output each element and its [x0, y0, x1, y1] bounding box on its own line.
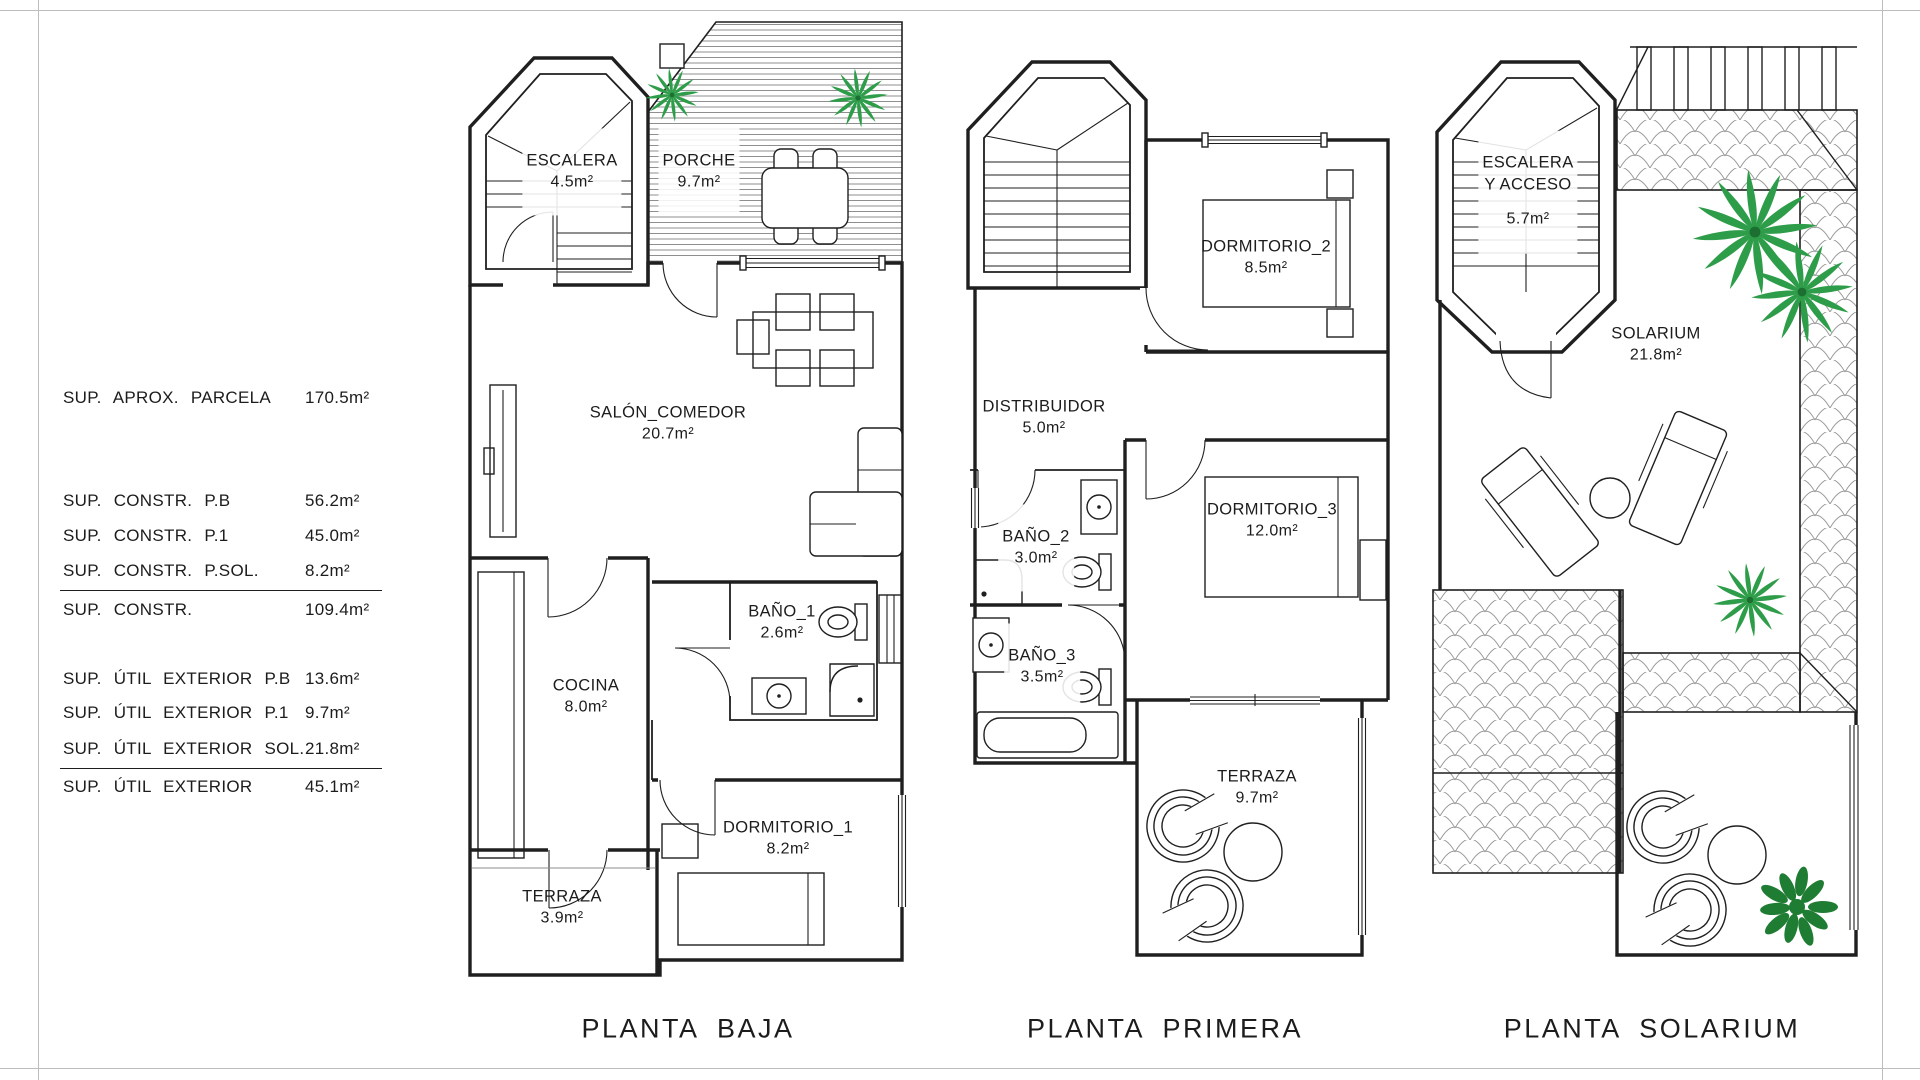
sink	[752, 678, 806, 714]
window-slider-dormitorio3	[1190, 694, 1320, 706]
door-arc	[548, 558, 607, 617]
room-label-escalera: ESCALERA 4.5m²	[522, 128, 621, 215]
room-label-salon-comedor: SALÓN_COMEDOR 20.7m²	[590, 381, 746, 466]
row-label: SUP. CONSTR. P.SOL.	[63, 561, 259, 581]
planter-box	[660, 44, 684, 68]
door-arc	[675, 648, 730, 703]
room-name: DORMITORIO_1	[723, 819, 853, 837]
door-arc	[1500, 341, 1551, 398]
table-rule	[60, 768, 382, 769]
door-arc	[1146, 288, 1208, 350]
door-arc	[660, 780, 715, 835]
room-label-bano1: BAÑO_1 2.6m²	[748, 580, 816, 665]
row-label: SUP. ÚTIL EXTERIOR P.B	[63, 669, 291, 689]
room-name: DISTRIBUIDOR	[982, 398, 1105, 416]
bathtub	[977, 712, 1118, 758]
sofa	[810, 428, 902, 556]
room-label-dormitorio3: DORMITORIO_3 12.0m²	[1207, 478, 1337, 563]
room-label-cocina: COCINA 8.0m²	[553, 654, 620, 739]
pergola	[1615, 47, 1857, 113]
shower	[830, 664, 874, 716]
dresser	[1327, 170, 1353, 198]
salon-dining-set	[737, 294, 873, 386]
round-table	[1224, 823, 1282, 881]
plan-title-planta-primera: PLANTA PRIMERA	[1027, 1014, 1303, 1045]
room-name: BAÑO_2	[1002, 528, 1070, 546]
roof-tiles-left	[1433, 590, 1623, 873]
row-value: 9.7m²	[305, 703, 350, 723]
dresser	[1327, 309, 1353, 337]
round-table	[1708, 826, 1766, 884]
room-label-dormitorio1: DORMITORIO_1 8.2m²	[723, 796, 853, 881]
row-value: 170.5m²	[305, 388, 369, 408]
row-value: 21.8m²	[305, 739, 360, 759]
row-label: SUP. ÚTIL EXTERIOR	[63, 777, 252, 797]
row-label: SUP. APROX. PARCELA	[63, 388, 271, 408]
window-dormitorio2	[1202, 133, 1327, 147]
kitchen-counter	[478, 572, 524, 858]
room-name: ESCALERA	[526, 152, 617, 170]
sun-lounger	[1622, 407, 1735, 548]
room-area: 9.7m²	[663, 172, 736, 193]
row-value: 109.4m²	[305, 600, 369, 620]
table-rule	[60, 590, 382, 591]
room-area: 8.5m²	[1201, 258, 1331, 279]
roof-tiles-top	[1617, 110, 1857, 190]
room-area: 4.5m²	[526, 172, 617, 193]
room-area: 8.0m²	[553, 697, 620, 718]
room-name: BAÑO_1	[748, 603, 816, 621]
duct-shaft	[879, 595, 902, 663]
sink	[1081, 480, 1117, 534]
lower-terrace-solarium	[1615, 712, 1860, 963]
door-arc	[663, 263, 717, 317]
room-name: BAÑO_3	[1008, 647, 1076, 665]
room-label-dormitorio2: DORMITORIO_2 8.5m²	[1201, 215, 1331, 300]
row-label: SUP. CONSTR. P.1	[63, 526, 229, 546]
row-label: SUP. ÚTIL EXTERIOR SOL.	[63, 739, 304, 759]
row-value: 56.2m²	[305, 491, 360, 511]
room-label-solarium: SOLARIUM 21.8m²	[1611, 302, 1700, 387]
row-label: SUP. ÚTIL EXTERIOR P.1	[63, 703, 289, 723]
room-area: 21.8m²	[1611, 345, 1700, 366]
round-table	[1590, 478, 1630, 518]
row-value: 45.0m²	[305, 526, 360, 546]
row-label: SUP. CONSTR. P.B	[63, 491, 230, 511]
row-value: 13.6m²	[305, 669, 360, 689]
drawing-sheet: SUP. APROX. PARCELA 170.5m² SUP. CONSTR.…	[0, 0, 1920, 1080]
room-name: SOLARIUM	[1611, 325, 1700, 343]
solarium-furniture	[1474, 407, 1734, 582]
room-name: SALÓN_COMEDOR	[590, 404, 746, 422]
palm-plant	[1713, 563, 1787, 637]
room-name: PORCHE	[663, 152, 736, 170]
door-arc	[1146, 440, 1205, 499]
room-area: 3.5m²	[1008, 667, 1076, 688]
room-area: 3.9m²	[522, 908, 602, 929]
closet	[1360, 540, 1386, 600]
sun-lounger	[1474, 442, 1606, 583]
room-name: DORMITORIO_3	[1207, 501, 1337, 519]
room-label-terraza-primera: TERRAZA 9.7m²	[1217, 745, 1297, 830]
room-label-porche: PORCHE 9.7m²	[659, 128, 740, 215]
room-name: COCINA	[553, 677, 620, 695]
bush-plant	[1758, 866, 1838, 948]
window-salon-porch	[740, 256, 885, 270]
room-label-distribuidor: DISTRIBUIDOR 5.0m²	[982, 375, 1105, 460]
room-name: DORMITORIO_2	[1201, 238, 1331, 256]
room-area: 12.0m²	[1207, 521, 1337, 542]
room-label-bano3: BAÑO_3 3.5m²	[1004, 623, 1080, 710]
room-name: TERRAZA	[1217, 768, 1297, 786]
toilet	[819, 604, 867, 640]
tv-unit	[484, 385, 516, 537]
room-area: 5.0m²	[982, 418, 1105, 439]
nightstand	[662, 824, 698, 858]
roof-tiles-bottom	[1623, 653, 1800, 712]
roof-tiles-right	[1800, 190, 1857, 712]
room-area: 9.7m²	[1217, 788, 1297, 809]
room-label-bano2: BAÑO_2 3.0m²	[998, 504, 1074, 591]
room-name: ESCALERA Y ACCESO	[1482, 154, 1573, 193]
room-label-escalera-acceso: ESCALERA Y ACCESO 5.7m²	[1478, 131, 1577, 254]
room-label-terraza-baja: TERRAZA 3.9m²	[522, 865, 602, 950]
window-terraza-primera	[1356, 718, 1368, 935]
plan-title-planta-baja: PLANTA BAJA	[581, 1014, 794, 1045]
plan-title-planta-solarium: PLANTA SOLARIUM	[1504, 1014, 1801, 1045]
row-value: 8.2m²	[305, 561, 350, 581]
room-area: 5.7m²	[1482, 210, 1573, 231]
room-name: TERRAZA	[522, 888, 602, 906]
row-label: SUP. CONSTR.	[63, 600, 192, 620]
room-area: 20.7m²	[590, 424, 746, 445]
row-value: 45.1m²	[305, 777, 360, 797]
round-chair	[1615, 776, 1718, 875]
stair-tower-primera	[968, 62, 1146, 288]
room-area: 8.2m²	[723, 839, 853, 860]
window-dormitorio1	[896, 795, 908, 907]
room-area: 3.0m²	[1002, 548, 1070, 569]
door-arc	[503, 212, 553, 262]
window-distribuidor	[969, 488, 981, 528]
room-area: 2.6m²	[748, 623, 816, 644]
floor-plans-drawing	[0, 0, 1920, 1080]
